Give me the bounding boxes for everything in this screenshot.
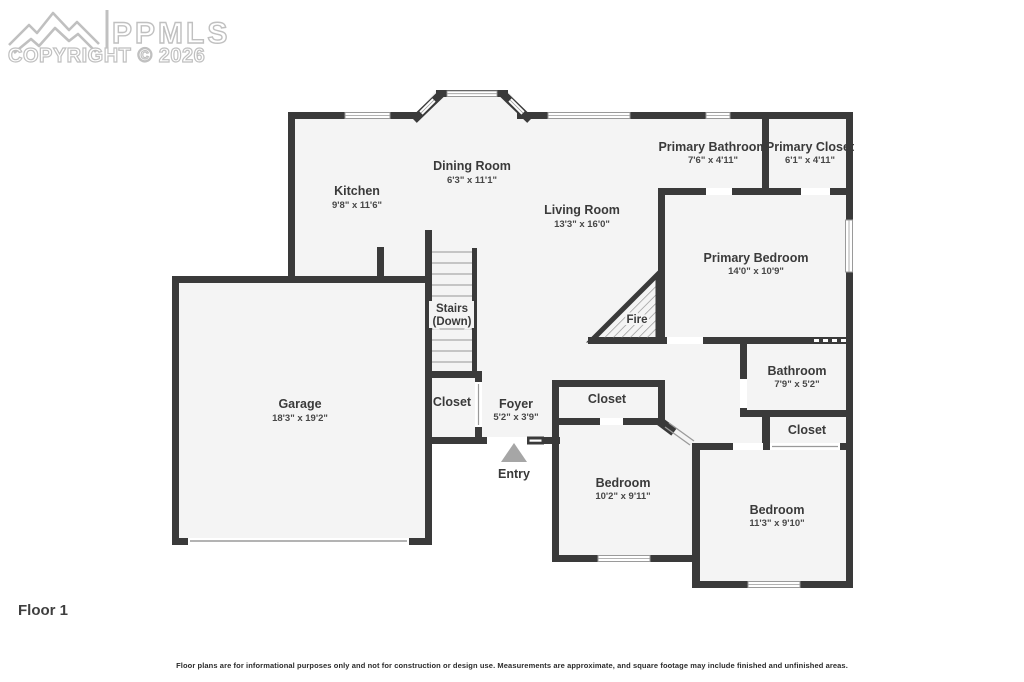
stairs-label-line2: (Down) xyxy=(433,316,472,328)
room-dims-bathroom: 7'9" x 5'2" xyxy=(774,379,819,390)
disclaimer-text: Floor plans are for informational purpos… xyxy=(0,661,1024,670)
room-label-living: Living Room xyxy=(544,203,620,217)
room-dims-foyer: 5'2" x 3'9" xyxy=(493,412,538,423)
room-label-foyer: Foyer xyxy=(499,397,533,411)
entry-arrow-icon xyxy=(501,443,527,462)
fireplace-label: Fire xyxy=(626,314,647,326)
stairs-label-line1: Stairs xyxy=(436,303,468,315)
room-dims-living: 13'3" x 16'0" xyxy=(554,219,610,230)
room-dims-kitchen: 9'8" x 11'6" xyxy=(332,200,382,211)
room-label-garage-closet: Closet xyxy=(433,395,472,409)
room-dims-primary-bathroom: 7'6" x 4'11" xyxy=(688,155,738,166)
room-dims-bedroom2: 11'3" x 9'10" xyxy=(749,518,804,529)
room-label-bedroom1: Bedroom xyxy=(596,476,651,490)
entry-label: Entry xyxy=(498,467,530,481)
room-dims-primary-bedroom: 14'0" x 10'9" xyxy=(728,266,784,277)
room-label-primary-bathroom: Primary Bathroom xyxy=(658,140,767,154)
room-dims-garage: 18'3" x 19'2" xyxy=(272,413,328,424)
room-label-bedroom1-closet: Closet xyxy=(588,392,627,406)
room-label-hall-closet: Closet xyxy=(788,423,827,437)
room-label-bathroom: Bathroom xyxy=(767,364,826,378)
floorplan-drawing: Dining Room 6'3" x 11'1" Kitchen 9'8" x … xyxy=(0,0,1024,682)
room-label-primary-closet: Primary Closet xyxy=(766,140,855,154)
room-dims-dining: 6'3" x 11'1" xyxy=(447,175,497,186)
floorplan-page: PPMLS COPYRIGHT © 2026 xyxy=(0,0,1024,682)
room-label-dining: Dining Room xyxy=(433,159,511,173)
room-label-primary-bedroom: Primary Bedroom xyxy=(704,251,809,265)
room-dims-primary-closet: 6'1" x 4'11" xyxy=(785,155,835,166)
floor-label: Floor 1 xyxy=(18,602,68,619)
room-label-garage: Garage xyxy=(278,397,321,411)
room-label-bedroom2: Bedroom xyxy=(750,503,805,517)
room-label-kitchen: Kitchen xyxy=(334,184,380,198)
room-dims-bedroom1: 10'2" x 9'11" xyxy=(595,491,650,502)
